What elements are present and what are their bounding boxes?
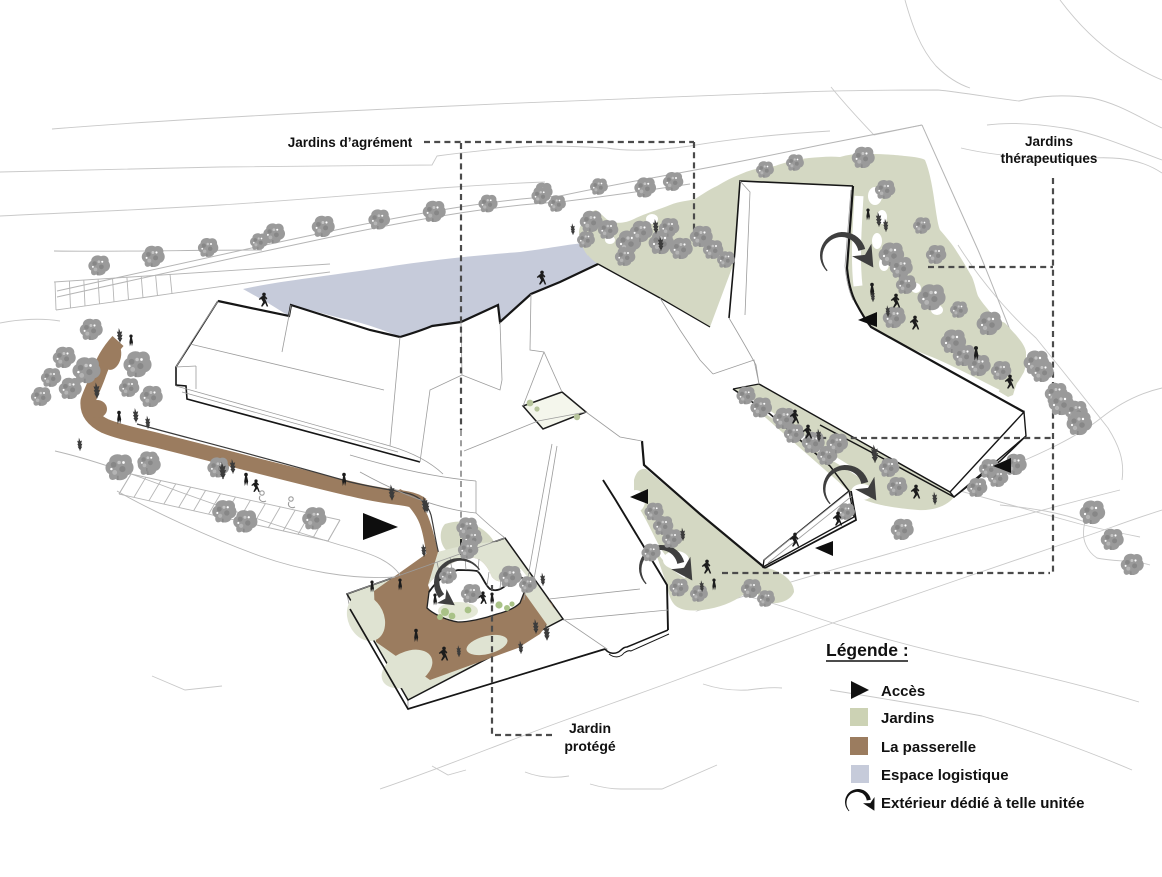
svg-text:Légende :: Légende : xyxy=(826,640,909,660)
svg-text:Extérieur dédié à telle unitée: Extérieur dédié à telle unitée xyxy=(881,795,1084,812)
svg-text:Espace logistique: Espace logistique xyxy=(881,767,1009,784)
svg-text:Jardin: Jardin xyxy=(569,720,611,736)
svg-text:thérapeutiques: thérapeutiques xyxy=(1001,151,1098,166)
svg-text:Accès: Accès xyxy=(881,683,925,700)
svg-text:La passerelle: La passerelle xyxy=(881,739,976,756)
svg-text:Jardins: Jardins xyxy=(1025,134,1073,149)
svg-text:protégé: protégé xyxy=(564,738,616,754)
svg-text:Jardins: Jardins xyxy=(881,710,934,727)
svg-text:Jardins d’agrément: Jardins d’agrément xyxy=(288,135,413,150)
